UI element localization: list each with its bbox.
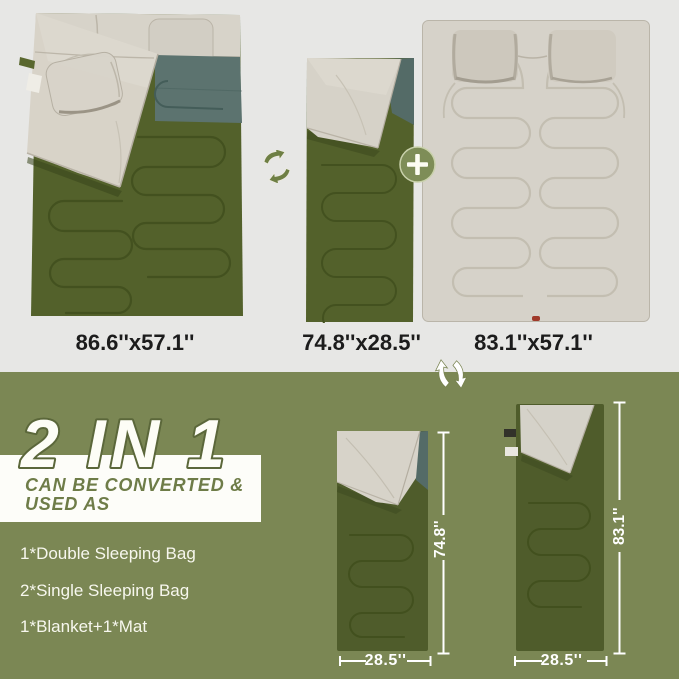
svg-text:83.1'': 83.1'' — [611, 507, 628, 545]
svg-text:2 IN 1: 2 IN 1 — [19, 406, 229, 482]
svg-text:74.8'': 74.8'' — [432, 520, 449, 558]
